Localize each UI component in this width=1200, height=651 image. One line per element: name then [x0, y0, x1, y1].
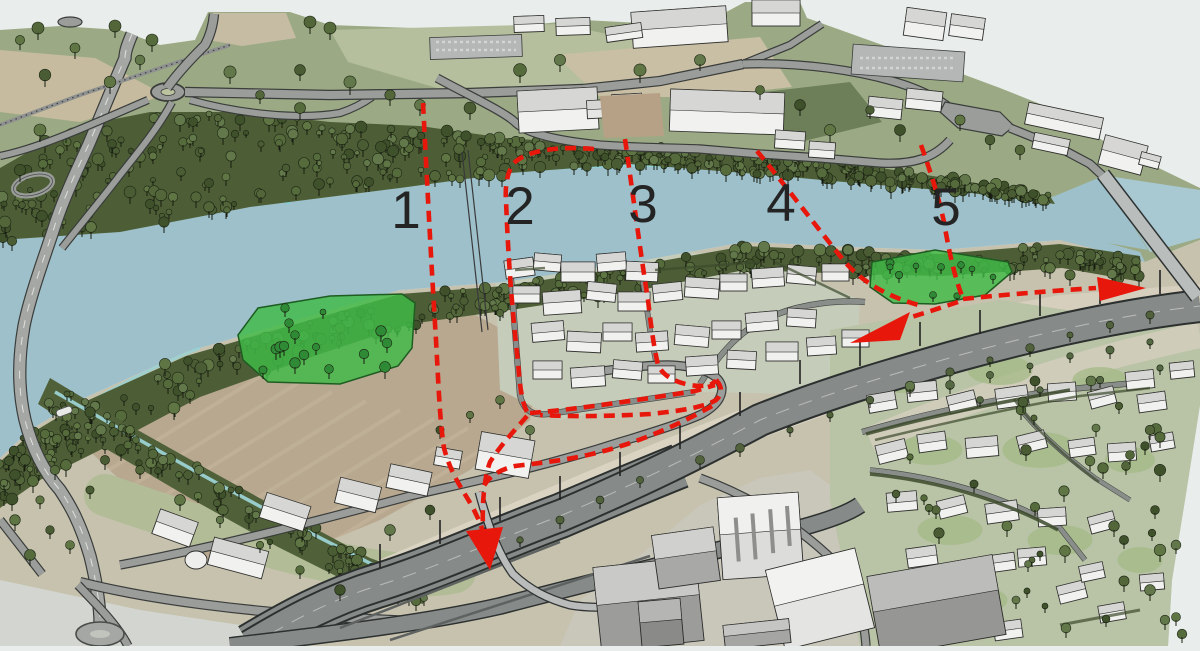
svg-text:4: 4	[766, 174, 795, 233]
svg-text:1: 1	[391, 181, 420, 240]
svg-text:2: 2	[505, 177, 534, 236]
svg-text:3: 3	[628, 175, 657, 234]
svg-text:5: 5	[931, 178, 960, 237]
